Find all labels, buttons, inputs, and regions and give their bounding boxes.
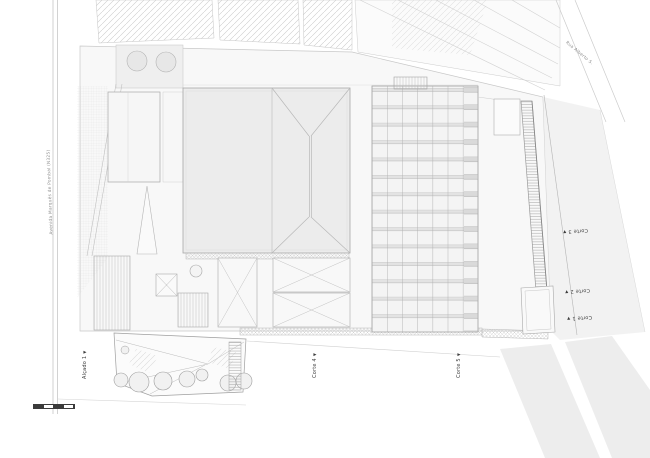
scale-bar-segment xyxy=(64,405,74,408)
section-cut-triangle-icon: ▼ xyxy=(567,316,570,320)
plan-linework xyxy=(0,0,650,458)
section-cut-triangle-icon: ▼ xyxy=(563,230,567,234)
site-plan-canvas: Avenida Marquês de Pombal (N325) Rua Alb… xyxy=(0,0,650,458)
section-cut-triangle-icon: ▼ xyxy=(83,350,87,353)
section-cut-triangle-icon: ▼ xyxy=(457,353,461,356)
section-cut-triangle-icon: ▼ xyxy=(313,353,317,356)
section-marker-label: Corte 5 xyxy=(456,358,462,378)
scale-bar xyxy=(33,404,75,409)
elevation-marker-alcado-1: Alçado 1 ▼ xyxy=(82,350,88,379)
section-marker-label: Corte 4 xyxy=(312,358,318,378)
section-marker-label: Corte 1 xyxy=(572,314,592,321)
scale-bar-segment xyxy=(44,405,54,408)
scale-bar-segment xyxy=(34,405,44,408)
section-cut-triangle-icon: ▼ xyxy=(565,290,569,294)
section-marker-corte-5: Corte 5 ▼ xyxy=(456,353,462,378)
scale-bar-segment xyxy=(54,405,64,408)
section-marker-corte-4: Corte 4 ▼ xyxy=(312,353,318,378)
section-marker-label: Alçado 1 xyxy=(82,356,88,379)
